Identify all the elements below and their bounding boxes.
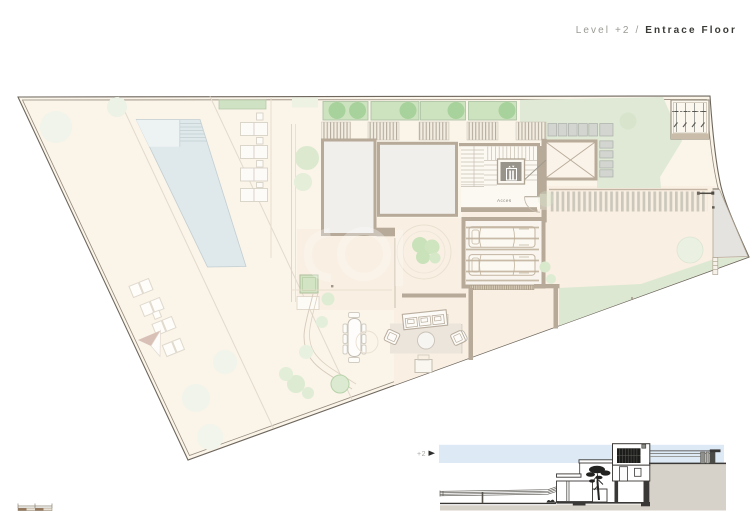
- svg-text:+2: +2: [417, 451, 426, 458]
- svg-text:Acces: Acces: [497, 198, 512, 203]
